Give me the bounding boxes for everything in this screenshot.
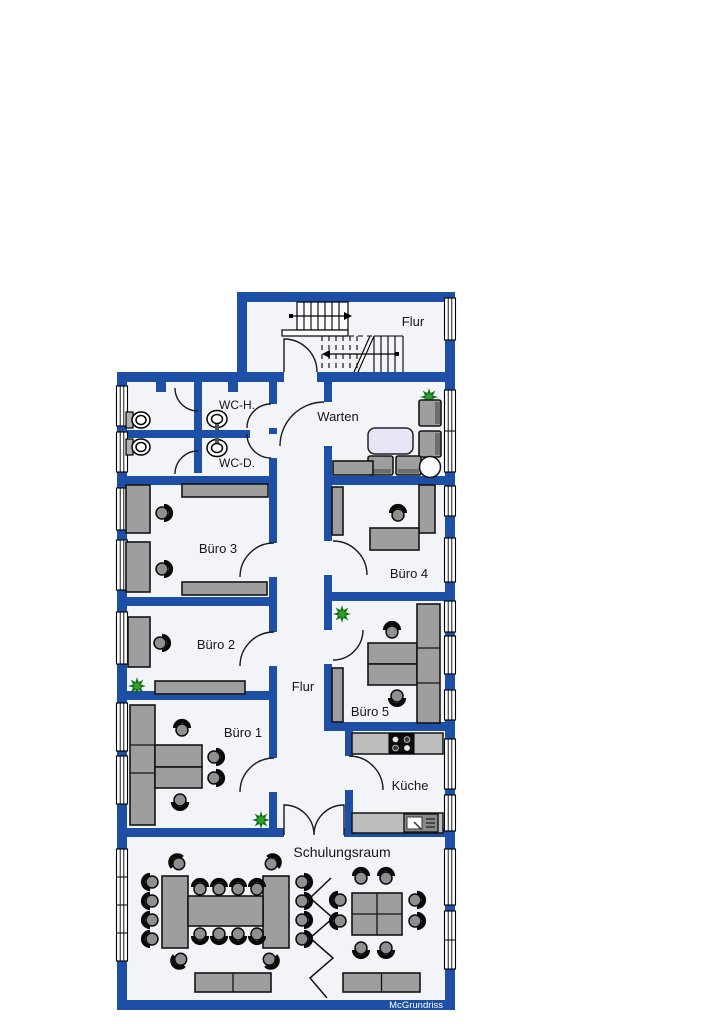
room-label-office3: Büro 3 <box>199 541 237 556</box>
side-table <box>420 457 441 478</box>
cabinet <box>332 668 343 722</box>
room-label-training: Schulungsraum <box>293 844 390 860</box>
window <box>445 486 456 516</box>
desk <box>368 643 417 664</box>
window <box>117 612 128 664</box>
coffee-table <box>368 428 413 454</box>
window <box>445 690 456 720</box>
office-chair <box>250 928 264 943</box>
office-chair <box>193 880 207 895</box>
floor-plan: Flur WC-H. WC-D. Warten Büro 3 Büro 4 Bü… <box>0 0 724 1024</box>
room-label-kitchen: Küche <box>392 778 429 793</box>
office-chair <box>231 880 245 895</box>
office-chair <box>156 506 171 520</box>
office-chair <box>391 506 405 521</box>
window <box>117 703 128 751</box>
office-chair <box>212 880 226 895</box>
desk <box>130 705 155 825</box>
office-chair <box>250 880 264 895</box>
sideboard <box>155 681 245 694</box>
office-chair <box>331 893 346 907</box>
office-chair <box>193 928 207 943</box>
office-chair <box>173 794 187 809</box>
office-chair <box>390 690 404 705</box>
office-chair <box>175 721 189 736</box>
armchair <box>396 456 421 475</box>
room-label-stair-hall: Flur <box>402 314 425 329</box>
office-chair <box>296 913 311 927</box>
office-chair <box>409 914 424 928</box>
room-label-wc-h: WC-H. <box>219 398 255 412</box>
table <box>188 896 263 926</box>
window <box>445 601 456 632</box>
office-chair <box>143 894 158 908</box>
office-chair <box>379 869 393 884</box>
desk <box>370 528 419 550</box>
room-label-office4: Büro 4 <box>390 566 428 581</box>
stove-icon <box>389 734 414 753</box>
sideboard <box>333 461 373 475</box>
desk <box>368 664 417 685</box>
window <box>445 795 456 831</box>
window <box>117 849 128 961</box>
window <box>445 911 456 969</box>
desk <box>155 745 202 767</box>
window <box>445 849 456 905</box>
office-chair <box>354 869 368 884</box>
office-chair <box>354 942 368 957</box>
office-chair <box>385 623 399 638</box>
window <box>117 756 128 804</box>
room-label-wc-d: WC-D. <box>219 456 255 470</box>
office-chair <box>156 562 171 576</box>
table <box>162 876 188 948</box>
shelf <box>182 582 267 595</box>
floor-plan-page: Flur WC-H. WC-D. Warten Büro 3 Büro 4 Bü… <box>0 0 724 1024</box>
office-chair <box>296 932 311 946</box>
office-chair <box>143 875 158 889</box>
window <box>445 739 456 789</box>
window <box>445 636 456 674</box>
office-chair <box>409 893 424 907</box>
desk <box>126 485 150 533</box>
toilet-icon <box>126 439 150 455</box>
window <box>445 390 456 472</box>
room-label-office2: Büro 2 <box>197 637 235 652</box>
office-chair <box>296 894 311 908</box>
toilet-icon <box>126 412 150 428</box>
office-chair <box>208 771 223 785</box>
office-chair <box>331 914 346 928</box>
office-chair <box>231 928 245 943</box>
armchair <box>419 400 441 426</box>
shelf <box>182 484 268 497</box>
office-chair <box>143 932 158 946</box>
plant-icon <box>128 677 146 695</box>
office-chair <box>379 942 393 957</box>
desk <box>419 485 435 533</box>
office-chair <box>154 636 169 650</box>
room-label-waiting: Warten <box>317 409 358 424</box>
desk <box>128 617 150 667</box>
table <box>263 876 289 948</box>
window <box>445 298 456 340</box>
plant-icon <box>333 605 351 623</box>
office-chair <box>296 875 311 889</box>
room-label-office1: Büro 1 <box>224 725 262 740</box>
armchair <box>419 431 441 457</box>
watermark: McGrundriss <box>389 1000 443 1011</box>
cabinet <box>417 604 440 723</box>
office-chair <box>143 913 158 927</box>
group-table <box>352 893 402 935</box>
office-chair <box>212 928 226 943</box>
desk <box>155 767 202 788</box>
kitchen-sink-icon <box>404 814 438 832</box>
cabinet <box>332 487 343 535</box>
office-chair <box>208 750 223 764</box>
plant-icon <box>252 811 270 829</box>
room-label-office5: Büro 5 <box>351 704 389 719</box>
window <box>445 538 456 582</box>
desk <box>126 542 150 592</box>
room-label-corridor: Flur <box>292 679 315 694</box>
